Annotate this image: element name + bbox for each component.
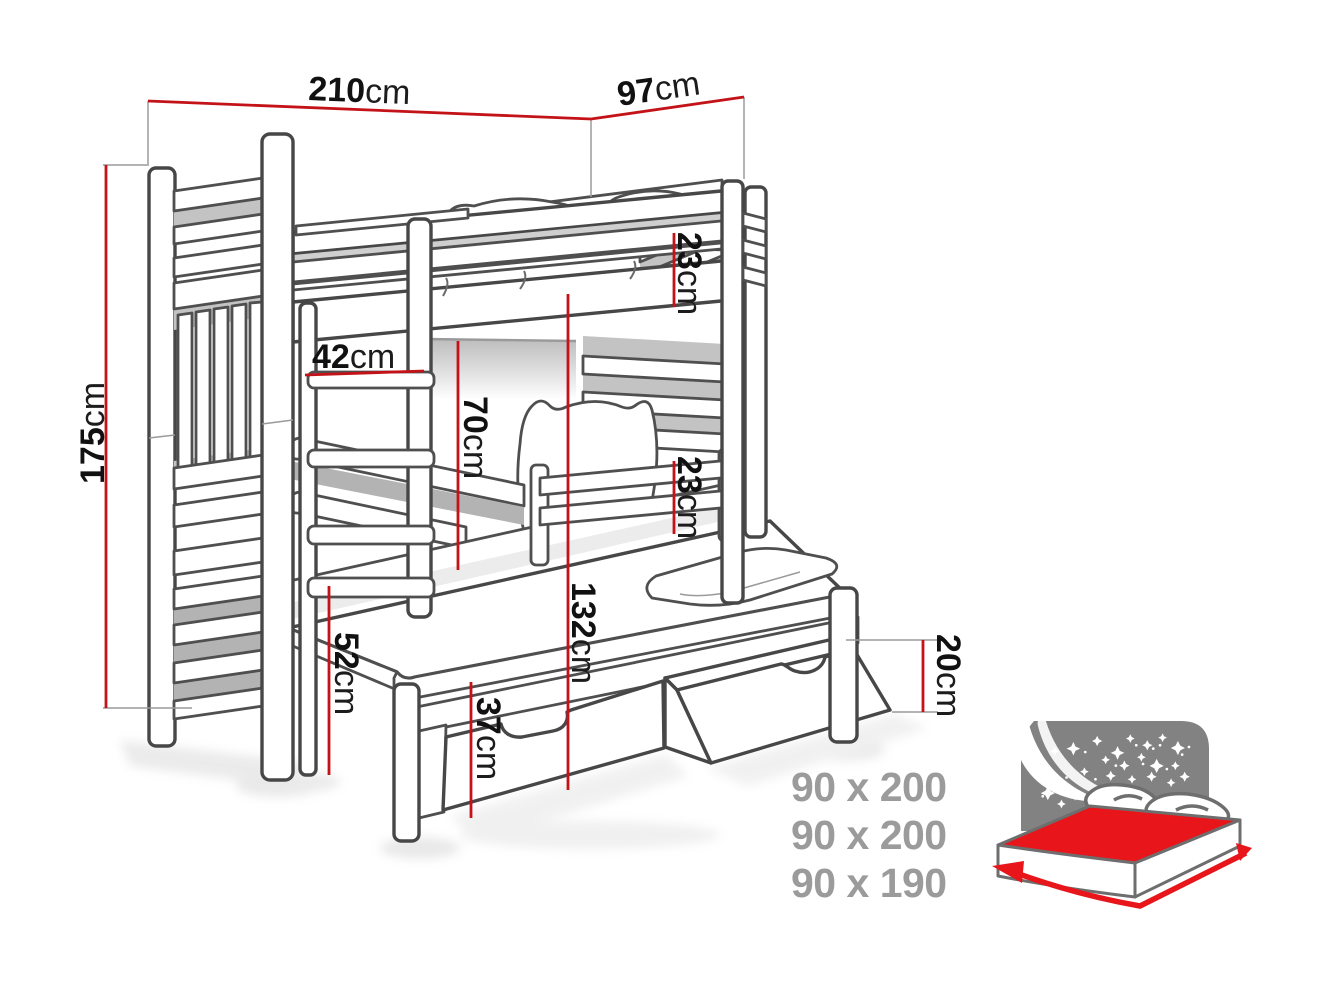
svg-text:20cm: 20cm — [929, 634, 967, 717]
svg-text:23cm: 23cm — [670, 456, 708, 539]
svg-text:42cm: 42cm — [312, 338, 395, 376]
svg-text:37cm: 37cm — [469, 697, 507, 780]
svg-text:90 x 200: 90 x 200 — [791, 764, 947, 810]
svg-text:52cm: 52cm — [327, 632, 365, 715]
svg-text:175cm: 175cm — [74, 382, 112, 484]
svg-text:132cm: 132cm — [564, 582, 602, 684]
svg-text:70cm: 70cm — [456, 396, 494, 479]
svg-text:23cm: 23cm — [670, 232, 708, 315]
svg-text:90 x 190: 90 x 190 — [791, 860, 947, 906]
svg-text:90 x 200: 90 x 200 — [791, 812, 947, 858]
svg-text:210cm: 210cm — [308, 70, 412, 112]
